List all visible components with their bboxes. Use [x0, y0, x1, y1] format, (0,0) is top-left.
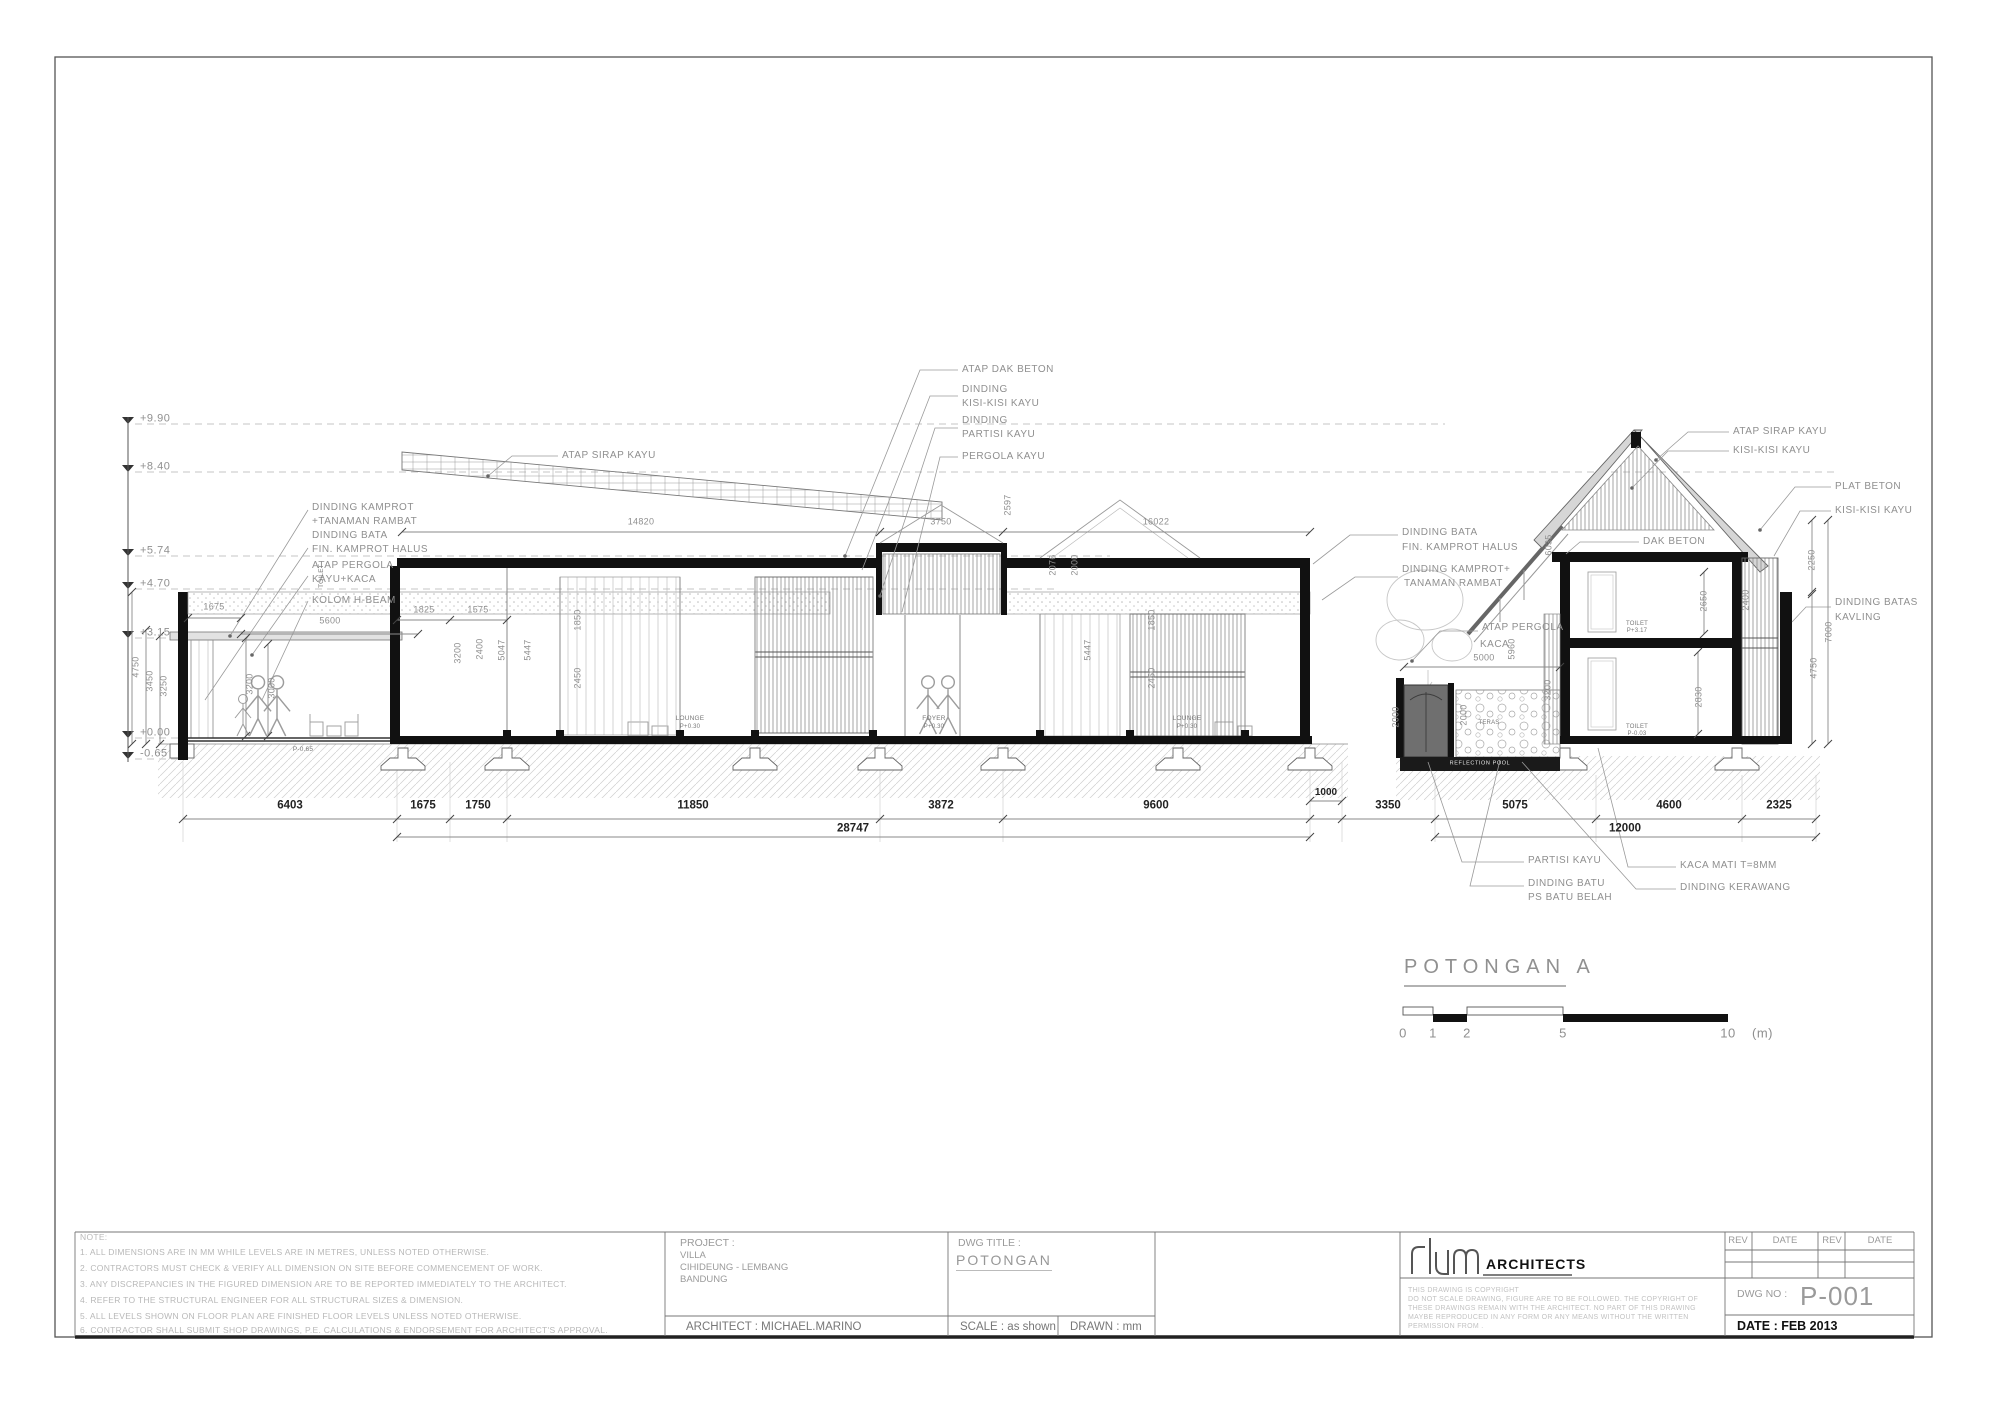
copyright-line: PERMISSION FROM . — [1408, 1323, 1484, 1331]
clerestory-louvres — [883, 554, 1000, 614]
drawing-text: PARTISI KAYU — [962, 430, 1035, 440]
drawing-text: PERGOLA KAYU — [962, 452, 1045, 462]
drawing-text: FOYER — [922, 716, 945, 723]
drawing-text: 1850 — [1148, 609, 1157, 630]
drawing-text: 2250 — [1808, 549, 1817, 570]
tower-floor-slab — [1565, 638, 1737, 648]
drawing-text: 1675 — [203, 603, 224, 612]
drawing-text: 2000 — [1392, 706, 1401, 727]
drawing-text: 5075 — [1502, 800, 1528, 812]
drawing-text: TERAS — [1478, 720, 1499, 726]
drawing-text: DINDING BATAS — [1835, 598, 1918, 608]
drawn-value: DRAWN : mm — [1070, 1321, 1142, 1334]
drawing-text: DINDING — [962, 416, 1008, 426]
drawing-text: 6403 — [277, 800, 303, 812]
drawing-text: LOUNGE — [1173, 716, 1202, 723]
side-louvre-screen — [1742, 558, 1778, 744]
project-city: BANDUNG — [680, 1275, 728, 1286]
scale-bar — [1403, 986, 1728, 1022]
drawing-text: DINDING BATA — [1402, 528, 1478, 538]
copyright-line: DO NOT SCALE DRAWING, FIGURE ARE TO BE F… — [1408, 1296, 1698, 1304]
drawing-text: TANAMAN RAMBAT — [1404, 579, 1503, 589]
drawing-text: FIN. KAMPROT HALUS — [312, 545, 428, 555]
drawing-text: 3200 — [1544, 679, 1553, 700]
level-574: +5.74 — [140, 546, 170, 557]
drawing-text: 2076 — [1049, 554, 1058, 575]
drawing-text: 1675 — [410, 800, 436, 812]
drawing-text: 4600 — [1656, 800, 1682, 812]
project-label: PROJECT : — [680, 1237, 735, 1249]
drawing-text: 11850 — [677, 800, 708, 812]
firm-name: ARCHITECTS — [1486, 1256, 1586, 1272]
drawing-text: 14820 — [628, 518, 655, 527]
drawing-text: 2325 — [1766, 800, 1792, 812]
drawing-text: DINDING — [962, 385, 1008, 395]
drawing-text: P-0.65 — [293, 747, 313, 754]
drawing-text: 3000 — [268, 677, 277, 698]
note-line: 1. ALL DIMENSIONS ARE IN MM WHILE LEVELS… — [80, 1248, 489, 1258]
shingle-roof — [402, 452, 942, 520]
drawing-text: 2597 — [1004, 494, 1013, 515]
drawing-text: 2830 — [1695, 686, 1704, 707]
drawing-text: DINDING KAMPROT — [312, 503, 414, 513]
drawing-text: 5447 — [1084, 639, 1093, 660]
drawing-text: ATAP DAK BETON — [962, 365, 1054, 375]
boundary-wall — [1780, 592, 1792, 744]
drawing-text: 1850 — [574, 609, 583, 630]
drawing-text: 2450 — [574, 667, 583, 688]
drawing-text: TOILET — [1626, 724, 1648, 730]
drawing-text: 3200 — [454, 642, 463, 663]
louvre-panel-left — [755, 577, 873, 733]
drawing-text: 3872 — [928, 800, 954, 812]
section-title: POTONGAN A — [1404, 957, 1596, 977]
leader-lines — [205, 370, 1831, 889]
drawing-text: 5047 — [498, 639, 507, 660]
drawing-text: 12000 — [1609, 823, 1641, 835]
scalebar-5: 5 — [1559, 1027, 1567, 1040]
floor-slab — [395, 736, 1312, 744]
drawing-text: P+3.17 — [1627, 628, 1647, 634]
date-header: DATE — [1868, 1236, 1893, 1247]
drawing-text: 6035 — [1545, 534, 1554, 555]
drawing-text: 1000 — [1315, 788, 1337, 798]
drawing-text: 2450 — [1148, 667, 1157, 688]
drawing-text: ATAP PERGOLA — [1482, 623, 1564, 633]
drawing-text: 5600 — [319, 617, 340, 626]
dwg-title: POTONGAN — [956, 1252, 1052, 1271]
rev-header: REV — [1728, 1236, 1748, 1247]
architect-name: ARCHITECT : MICHAEL.MARINO — [686, 1321, 862, 1334]
level-m065: -0.65 — [140, 749, 168, 760]
drawing-text: KACA — [1480, 640, 1509, 650]
tower-roof-sl — [1552, 552, 1748, 562]
drawing-text: 5000 — [1473, 654, 1494, 663]
copyright-line: MAYBE REPRODUCED IN ANY FORM OR ANY MEAN… — [1408, 1314, 1689, 1322]
drawing-text: TOILET — [1626, 621, 1648, 627]
drawing-text: 7000 — [1825, 621, 1834, 642]
project-location: CIHIDEUNG - LEMBANG — [680, 1263, 788, 1274]
drawing-text: 4750 — [132, 656, 141, 677]
project-name: VILLA — [680, 1251, 706, 1262]
drawing-text: P+0.30 — [1177, 724, 1197, 730]
drawing-text: ATAP SIRAP KAYU — [1733, 427, 1827, 437]
drawing-text: 1750 — [465, 800, 491, 812]
drawing-text: 2400 — [476, 638, 485, 659]
drawing-text: KAVLING — [1835, 613, 1881, 623]
drawing-text: 2650 — [1700, 590, 1709, 611]
drawing-text: PS BATU BELAH — [1528, 893, 1612, 903]
drawing-text: 3350 — [1375, 800, 1401, 812]
sheet-border — [55, 57, 1932, 1337]
drawing-text: KACA MATI T=8MM — [1680, 861, 1777, 871]
dwg-title-label: DWG TITLE : — [958, 1237, 1021, 1249]
scalebar-0: 0 — [1399, 1027, 1407, 1040]
drawing-text: KISI-KISI KAYU — [1733, 446, 1810, 456]
drawing-text: TOILET — [319, 564, 326, 588]
drawing-text: 4750 — [1810, 657, 1819, 678]
drawing-text: 5960 — [1508, 638, 1517, 659]
drawing-text: DINDING KAMPROT+ — [1402, 565, 1510, 575]
drawing-text: FIN. KAMPROT HALUS — [1402, 543, 1518, 553]
level-470: +4.70 — [140, 579, 170, 590]
drawing-text: P+0.30 — [680, 724, 700, 730]
copyright-line: THIS DRAWING IS COPYRIGHT — [1408, 1287, 1519, 1295]
drawing-text: P+0.30 — [924, 724, 944, 730]
dwg-no-label: DWG NO : — [1737, 1288, 1787, 1300]
drawing-text: 28747 — [837, 823, 869, 835]
drawing-text: PARTISI KAYU — [1528, 856, 1601, 866]
drawing-text: 1825 — [413, 606, 434, 615]
rev-header: REV — [1822, 1236, 1842, 1247]
roof-finial — [1631, 432, 1641, 448]
drawing-text: 5447 — [524, 639, 533, 660]
note-line: 2. CONTRACTORS MUST CHECK & VERIFY ALL D… — [80, 1264, 543, 1274]
drawing-text: DINDING BATA — [312, 531, 388, 541]
level-000: +0.00 — [140, 728, 170, 739]
drawing-text: 2000 — [1460, 704, 1469, 725]
drawing-text: ATAP SIRAP KAYU — [562, 451, 656, 461]
note-line: 6. CONTRACTOR SHALL SUBMIT SHOP DRAWINGS… — [80, 1326, 608, 1336]
drawing-text: KISI-KISI KAYU — [962, 399, 1039, 409]
drawing-text: DAK BETON — [1643, 537, 1705, 547]
drawing-text: 2000 — [1071, 554, 1080, 575]
drawing-text: 2400 — [1742, 589, 1751, 610]
note-line: 4. REFER TO THE STRUCTURAL ENGINEER FOR … — [80, 1296, 463, 1306]
scalebar-unit: (m) — [1752, 1027, 1773, 1040]
right-compound — [1376, 430, 1792, 771]
note-line: 3. ANY DISCREPANCIES IN THE FIGURED DIME… — [80, 1280, 567, 1290]
scalebar-10: 10 — [1720, 1027, 1735, 1040]
firm-logo — [1412, 1238, 1478, 1274]
drawing-text: REFLECTION POOL — [1450, 761, 1511, 767]
drawing-text: DINDING BATU — [1528, 879, 1605, 889]
dwg-no: P-001 — [1800, 1282, 1874, 1312]
drawing-text: 3450 — [146, 670, 155, 691]
drawing-text: 3200 — [246, 673, 255, 694]
drawing-text: DINDING KERAWANG — [1680, 883, 1791, 893]
level-315: +3.15 — [140, 628, 170, 639]
roof-slab-left — [397, 558, 880, 568]
scalebar-2: 2 — [1463, 1027, 1471, 1040]
drawing-text: LOUNGE — [676, 716, 705, 723]
drawing-text: 1575 — [467, 606, 488, 615]
drawing-text: KISI-KISI KAYU — [1835, 506, 1912, 516]
glass-wall-left — [560, 577, 680, 735]
glass-wall-right — [1040, 614, 1120, 736]
drawing-text: +TANAMAN RAMBAT — [312, 517, 417, 527]
drawing-text: P-0.03 — [1628, 731, 1647, 737]
drawing-date: DATE : FEB 2013 — [1737, 1319, 1838, 1333]
scalebar-1: 1 — [1429, 1027, 1437, 1040]
note-line: 5. ALL LEVELS SHOWN ON FLOOR PLAN ARE FI… — [80, 1312, 522, 1322]
drawing-text: 16022 — [1143, 518, 1170, 527]
level-840: +8.40 — [140, 462, 170, 473]
note-heading: NOTE: — [80, 1233, 107, 1243]
drawing-text: KOLOM H-BEAM — [312, 596, 396, 606]
copyright-line: THESE DRAWINGS REMAIN WITH THE ARCHITECT… — [1408, 1305, 1696, 1313]
drawing-text: 3750 — [930, 518, 951, 527]
drawing-sheet: +9.90+8.40+5.74+4.70+3.15+0.00-0.65DINDI… — [0, 0, 2000, 1414]
drawing-text: 9600 — [1143, 800, 1169, 812]
scale-value: SCALE : as shown — [960, 1321, 1056, 1334]
drawing-text: PLAT BETON — [1835, 482, 1901, 492]
drawing-text: 3250 — [160, 675, 169, 696]
level-990: +9.90 — [140, 414, 170, 425]
date-header: DATE — [1773, 1236, 1798, 1247]
